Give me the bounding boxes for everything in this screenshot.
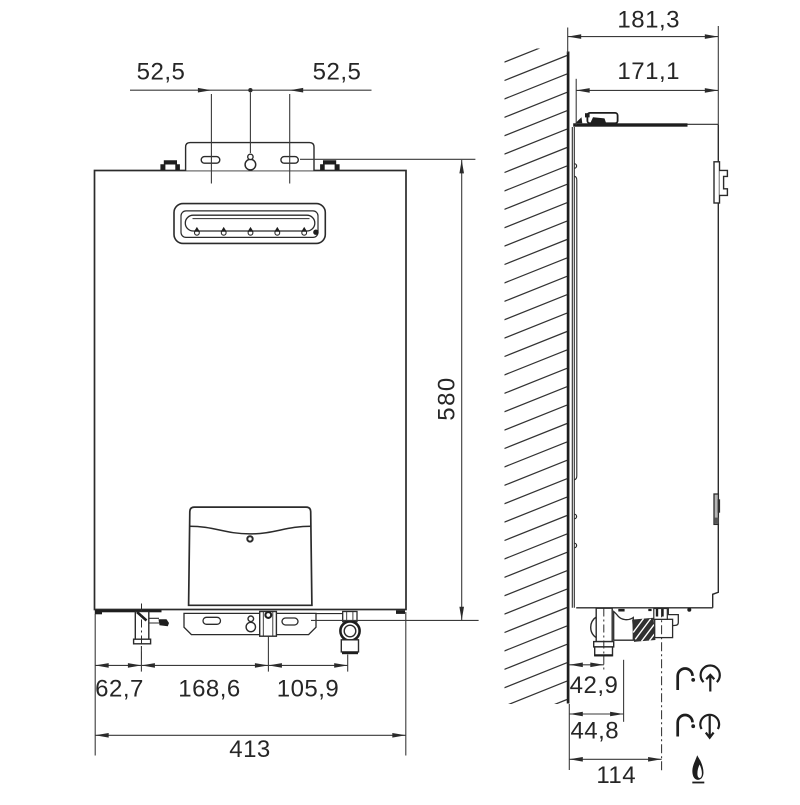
- svg-text:580: 580: [434, 376, 461, 421]
- svg-text:52,5: 52,5: [137, 59, 186, 86]
- svg-text:171,1: 171,1: [617, 58, 680, 85]
- svg-text:114: 114: [596, 762, 636, 789]
- svg-text:44,8: 44,8: [570, 718, 619, 745]
- svg-text:42,9: 42,9: [570, 672, 619, 699]
- svg-text:168,6: 168,6: [178, 675, 241, 702]
- svg-text:181,3: 181,3: [617, 7, 680, 34]
- svg-text:62,7: 62,7: [95, 675, 144, 702]
- svg-text:105,9: 105,9: [277, 675, 340, 702]
- svg-text:52,5: 52,5: [313, 59, 362, 86]
- svg-text:413: 413: [229, 736, 271, 763]
